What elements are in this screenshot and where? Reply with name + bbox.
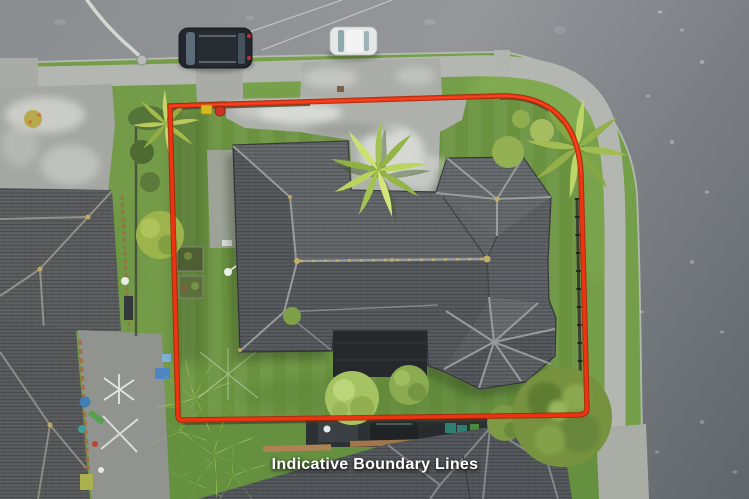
left-neighbor-patio: [78, 330, 171, 499]
tree-small-2: [389, 365, 429, 405]
left-neighbor-roof-lower: [0, 320, 90, 499]
satellite-dish: [121, 277, 129, 285]
boundary-disclaimer-text: Indicative Boundary Lines: [272, 456, 479, 474]
parked-white-car: [327, 27, 379, 61]
aerial-listing-photo: Indicative Boundary Lines: [0, 0, 749, 499]
parked-suv: [178, 28, 254, 72]
shrub-tree-left: [136, 211, 184, 259]
blue-tarp: [155, 368, 170, 379]
left-neighbor-roof-upper: [0, 188, 133, 331]
letterbox: [337, 86, 344, 92]
aerial-scene: [0, 0, 749, 499]
bin: [80, 474, 93, 490]
